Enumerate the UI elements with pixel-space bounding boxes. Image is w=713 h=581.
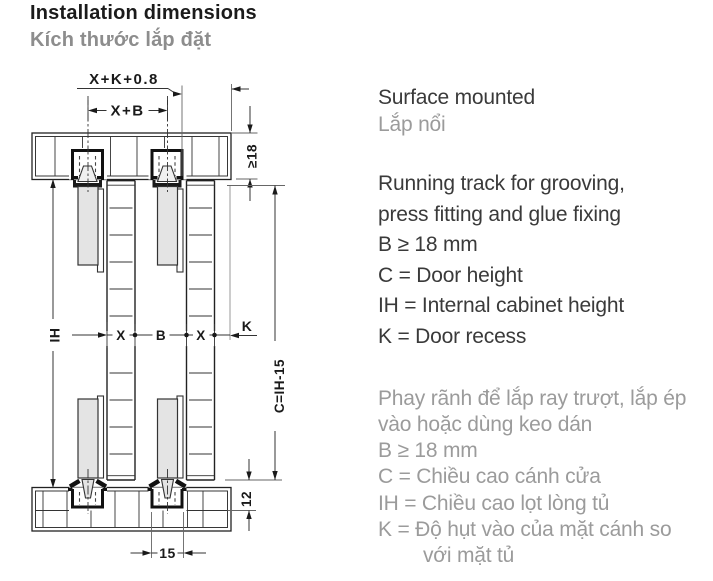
door-panel-upper (107, 181, 135, 332)
dim-label-door-gap: B (156, 328, 166, 343)
legend-line: B ≥ 18 mm (378, 230, 713, 261)
legend-line: B ≥ 18 mm (378, 438, 713, 464)
door-upper-assembly (69, 148, 135, 331)
dim-label-board-thickness: ≥18 (245, 144, 260, 168)
legend-line: IH = Internal cabinet height (378, 291, 713, 322)
dim-label-bottom-track-width: 15 (159, 545, 176, 561)
dim-label-door-recess: K (242, 318, 253, 334)
runner-profile (78, 187, 98, 266)
dim-label-bottom-engagement: 12 (239, 491, 254, 507)
legend-line: K = Độ hụt vào của mặt cánh so (378, 517, 713, 543)
dim-label-door2-thickness: X (196, 328, 206, 343)
top-cabinet-board (32, 133, 231, 180)
legend-line: K = Door recess (378, 322, 713, 353)
legend-line: C = Chiều cao cánh cửa (378, 464, 713, 490)
legend-line: IH = Chiều cao lọt lòng tủ (378, 491, 713, 517)
legend-vietnamese-block: Phay rãnh để lắp ray trượt, lắp ép vào h… (378, 386, 713, 570)
dimension-internal-height: IH (47, 179, 63, 488)
legend-line: Phay rãnh để lắp ray trượt, lắp ép (378, 386, 713, 412)
dimension-top-inner: X+B (88, 100, 168, 122)
dim-label-internal-height: IH (47, 328, 63, 343)
legend-heading-vi: Lắp nổi (378, 111, 713, 138)
bottom-cabinet-board (32, 488, 256, 532)
door-lower-assembly (68, 346, 135, 511)
legend-line: press fitting and glue fixing (378, 200, 713, 231)
dimension-bottom-track-width: 15 (131, 512, 207, 561)
dimension-bottom-engagement: 12 (239, 459, 254, 531)
legend-english-block: Running track for grooving, press fittin… (378, 169, 713, 353)
dim-label-top-outer: X+K+0.8 (89, 71, 159, 88)
runner-profile (78, 399, 98, 478)
legend-line: với mặt tủ (378, 543, 713, 569)
legend-line: C = Door height (378, 261, 713, 292)
door-panel-lower (107, 346, 135, 480)
dimension-board-thickness: ≥18 (231, 106, 260, 201)
legend-line: Running track for grooving, (378, 169, 713, 200)
dim-label-door1-thickness: X (116, 328, 126, 343)
dim-label-top-inner: X+B (110, 103, 144, 120)
legend-line: vào hoặc dùng keo dán (378, 412, 713, 438)
dimension-door-height: C=IH-15 (225, 186, 287, 481)
dim-label-door-height: C=IH-15 (272, 359, 287, 413)
legend-column: Surface mounted Lắp nổi Running track fo… (378, 84, 713, 570)
legend-heading-en: Surface mounted (378, 84, 713, 111)
